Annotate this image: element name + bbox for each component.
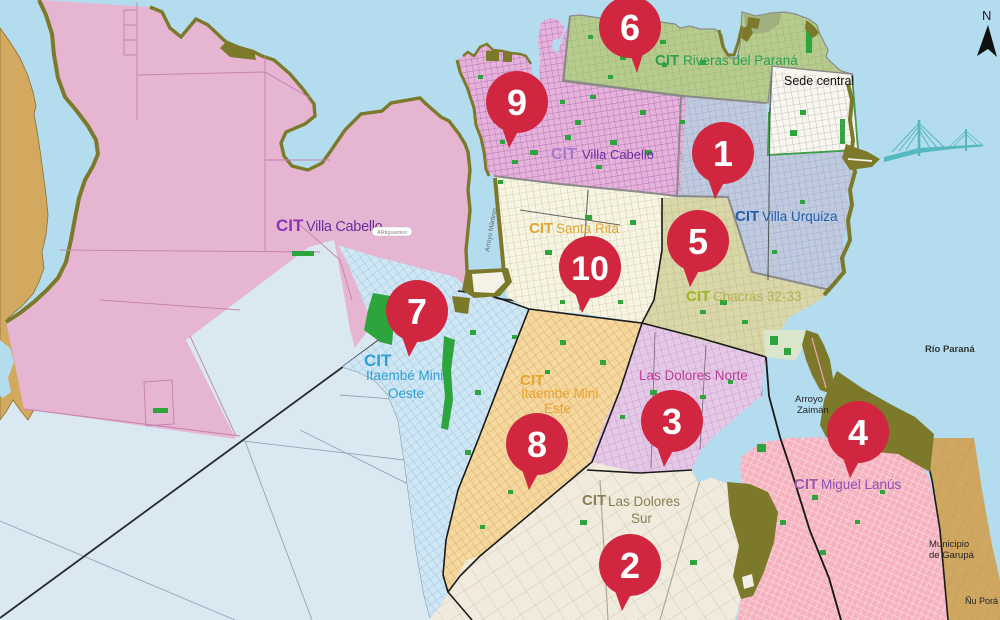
svg-text:Villa Cabello: Villa Cabello — [306, 219, 383, 235]
svg-text:Sede central: Sede central — [784, 74, 854, 88]
svg-text:Itaembé Mini: Itaembé Mini — [366, 368, 443, 383]
svg-text:2: 2 — [620, 545, 640, 586]
svg-text:Zaimán: Zaimán — [797, 405, 829, 416]
svg-text:6: 6 — [620, 7, 640, 48]
svg-text:5: 5 — [688, 221, 708, 262]
svg-text:CIT: CIT — [686, 288, 710, 305]
svg-text:ARtiguamiro: ARtiguamiro — [377, 230, 407, 236]
svg-text:CIT: CIT — [551, 146, 577, 163]
svg-text:CIT: CIT — [582, 492, 606, 509]
svg-text:CIT: CIT — [655, 52, 679, 69]
svg-text:CIT: CIT — [794, 476, 818, 493]
svg-text:Sur: Sur — [631, 511, 653, 526]
svg-text:9: 9 — [507, 82, 527, 123]
svg-text:Riveras del Paraná: Riveras del Paraná — [683, 53, 798, 68]
svg-text:Villa Urquiza: Villa Urquiza — [762, 209, 838, 224]
svg-text:Municipio: Municipio — [929, 539, 969, 550]
svg-text:Este: Este — [544, 401, 571, 416]
svg-text:Itaembé Mini: Itaembé Mini — [521, 386, 598, 401]
svg-text:CIT: CIT — [529, 220, 553, 237]
svg-text:8: 8 — [527, 424, 547, 465]
svg-text:CIT: CIT — [276, 216, 304, 235]
svg-text:de Garupá: de Garupá — [929, 550, 975, 561]
svg-text:1: 1 — [713, 133, 733, 174]
svg-text:3: 3 — [662, 401, 682, 442]
svg-text:Chacras 32-33: Chacras 32-33 — [713, 289, 802, 304]
svg-text:7: 7 — [407, 291, 427, 332]
svg-text:Las Dolores: Las Dolores — [608, 494, 680, 509]
svg-text:Santa Rita: Santa Rita — [556, 221, 620, 236]
svg-text:Miguel Lanús: Miguel Lanús — [821, 477, 902, 492]
svg-text:Ñu Porá: Ñu Porá — [965, 596, 998, 606]
svg-text:10: 10 — [571, 250, 609, 288]
svg-text:Oeste: Oeste — [388, 386, 424, 401]
svg-text:CIT: CIT — [735, 208, 759, 225]
svg-text:Las Dolores Norte: Las Dolores Norte — [639, 368, 748, 383]
svg-text:N: N — [982, 8, 991, 23]
svg-text:4: 4 — [848, 412, 868, 453]
svg-text:Río Paraná: Río Paraná — [925, 344, 975, 355]
svg-text:Arroyo: Arroyo — [795, 394, 823, 405]
svg-text:Villa Cabello: Villa Cabello — [582, 147, 654, 162]
